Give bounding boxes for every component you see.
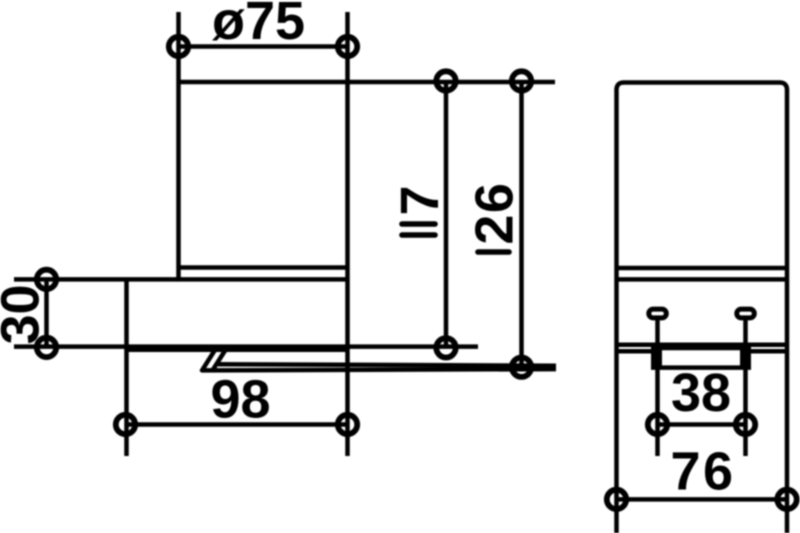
- svg-text:98: 98: [210, 370, 270, 430]
- svg-text:30: 30: [0, 284, 51, 344]
- svg-text:ø75: ø75: [212, 0, 305, 51]
- svg-text:6: 6: [465, 183, 525, 213]
- svg-text:38: 38: [671, 363, 731, 423]
- svg-text:2: 2: [465, 215, 525, 245]
- svg-text:7: 7: [390, 185, 450, 215]
- svg-text:76: 76: [670, 442, 735, 502]
